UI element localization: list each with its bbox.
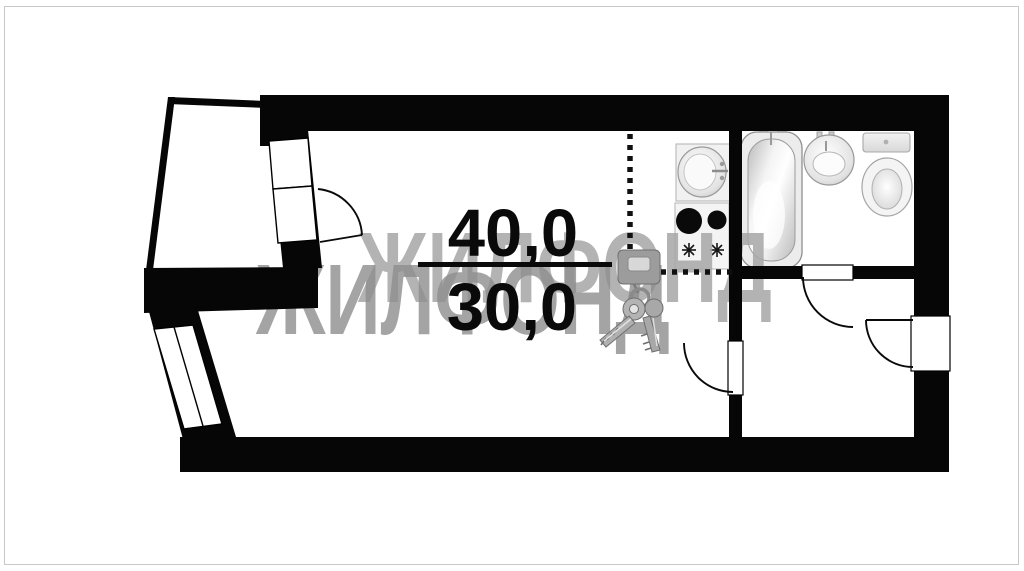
bathroom-door-swing: [803, 277, 853, 327]
wall-left-band: [144, 267, 318, 313]
area-fraction-line: [418, 262, 612, 267]
hall-door-leaf: [728, 341, 743, 395]
balcony-parapet-left: [146, 97, 175, 270]
bathroom-door-leaf: [802, 265, 853, 280]
balcony-parapet-top: [168, 97, 266, 108]
wall-bottom: [180, 437, 949, 472]
balcony-window: [269, 138, 312, 189]
hall-door-swing: [684, 343, 733, 392]
area-total: 40,0: [448, 196, 578, 271]
toilet-icon: [862, 133, 912, 216]
washbasin-icon: [804, 132, 854, 185]
area-living: 30,0: [447, 270, 577, 345]
entry-door-opening: [911, 316, 950, 371]
kitchen-sink-icon: [676, 144, 730, 201]
entry-door-swing: [866, 320, 913, 367]
floor-plan: ЖИЛФОНД ЖИЛФОНД: [0, 0, 1024, 571]
balcony-door-opening: [273, 186, 317, 243]
wall-right: [914, 95, 949, 472]
balcony-door-swing: [318, 189, 362, 242]
wall-top: [260, 95, 949, 146]
floor-plan-page: ЖИЛФОНД ЖИЛФОНД: [0, 0, 1024, 571]
